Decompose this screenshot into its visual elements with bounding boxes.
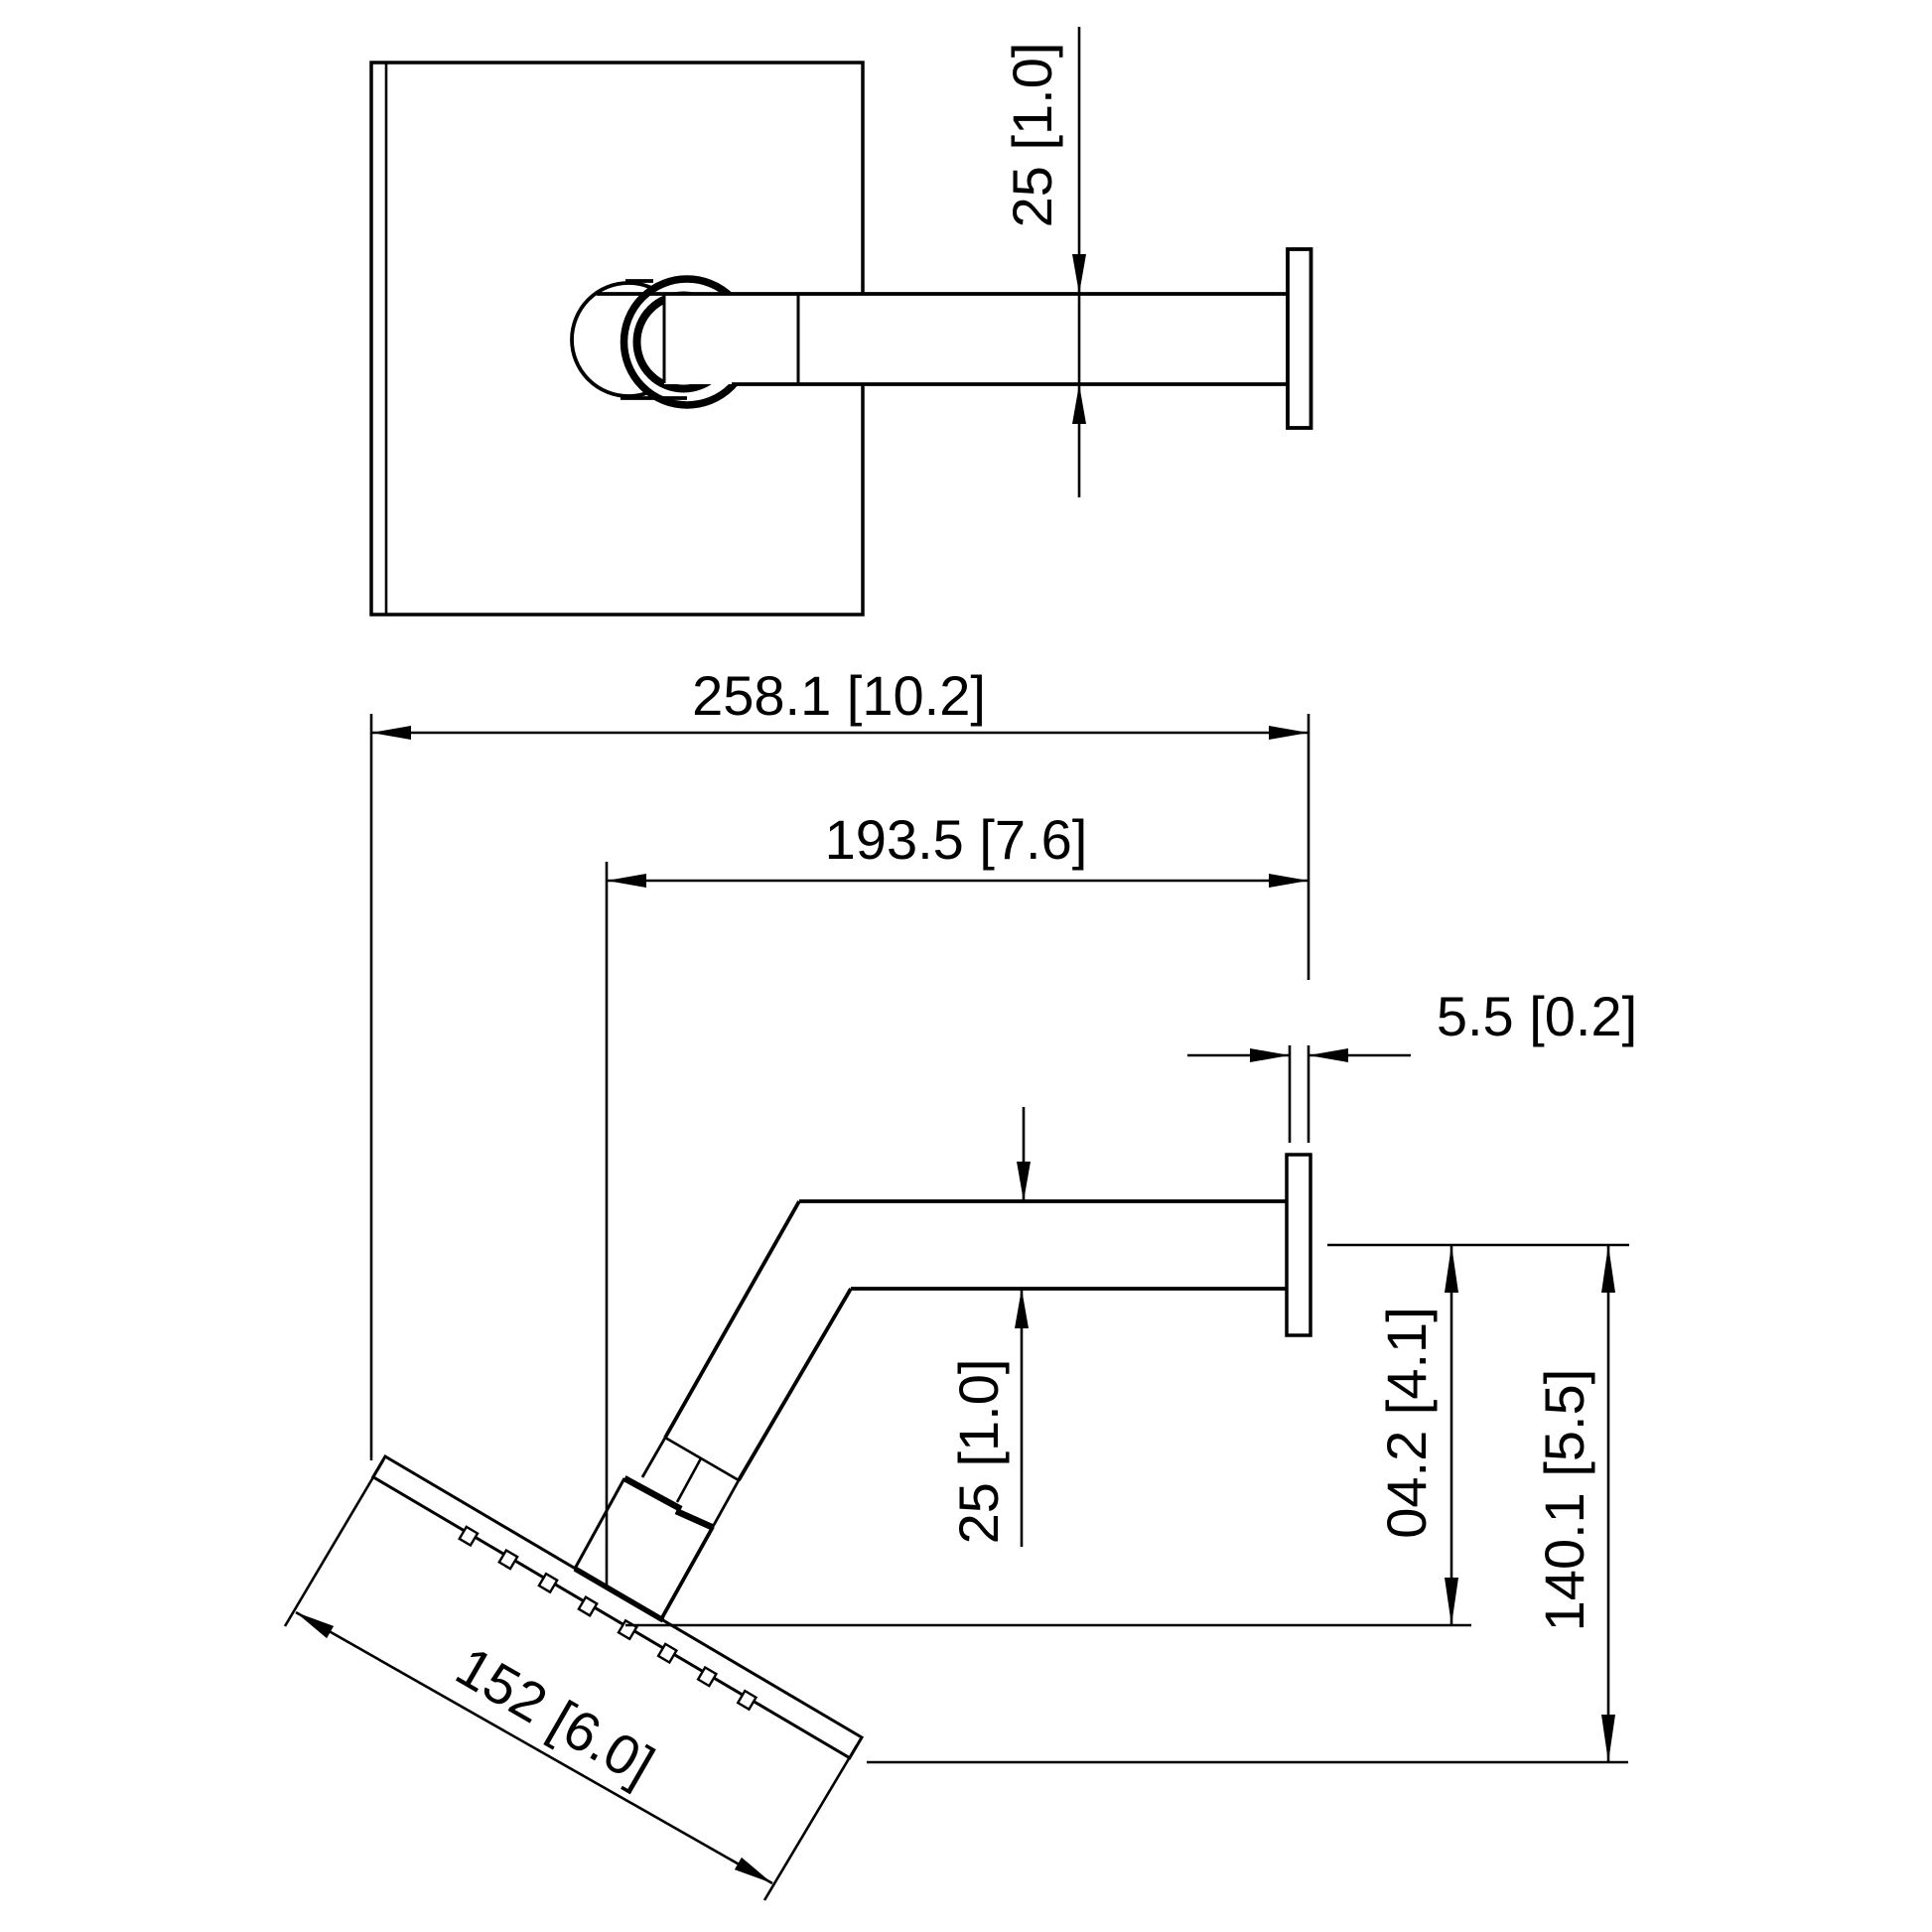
svg-text:5.5 [0.2]: 5.5 [0.2] <box>1437 985 1637 1047</box>
svg-text:04.2 [4.1]: 04.2 [4.1] <box>1375 1307 1438 1539</box>
svg-text:193.5 [7.6]: 193.5 [7.6] <box>825 808 1088 871</box>
svg-text:140.1 [5.5]: 140.1 [5.5] <box>1533 1369 1595 1632</box>
svg-text:258.1 [10.2]: 258.1 [10.2] <box>692 664 986 727</box>
svg-text:25 [1.0]: 25 [1.0] <box>1001 43 1063 228</box>
svg-text:25 [1.0]: 25 [1.0] <box>947 1359 1010 1545</box>
